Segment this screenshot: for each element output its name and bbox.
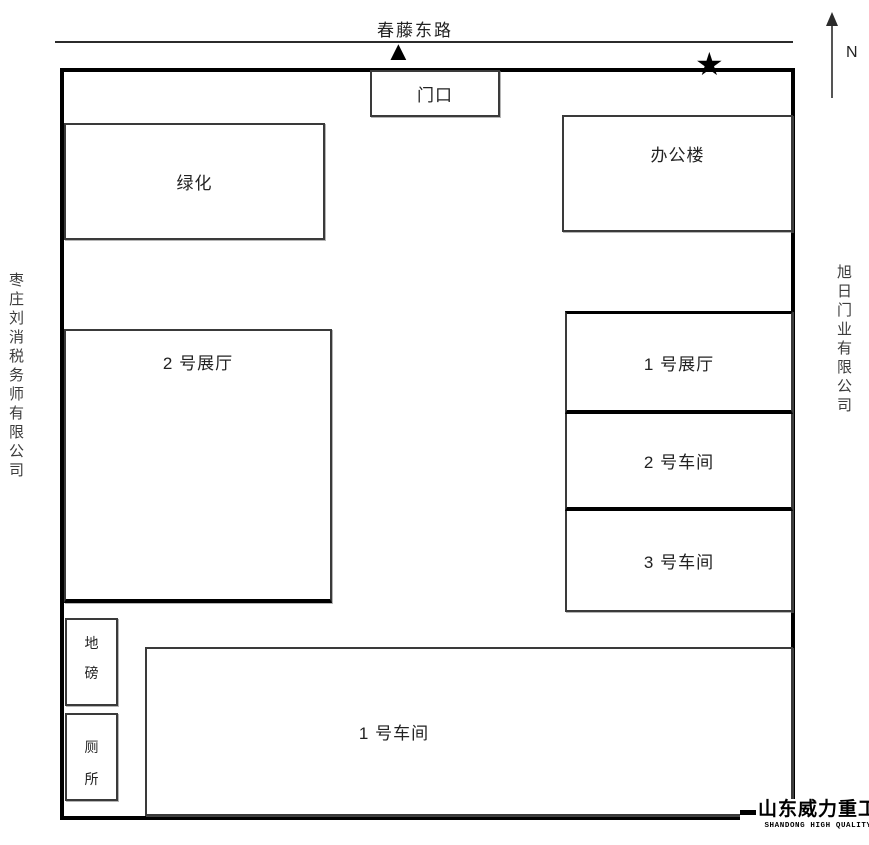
office-building-box: 办公楼 bbox=[562, 115, 793, 232]
workshop-3-label: 3 号车间 bbox=[644, 548, 714, 573]
neighbor-company-west: 枣庄刘消税务师有限公司 bbox=[8, 272, 23, 487]
site-plan-canvas: 春藤东路 ▲ N ★ 门口 绿化 办公楼 2 号展厅 1 号展厅 2 号车间 3… bbox=[0, 0, 869, 845]
toilet-label-char-2: 所 bbox=[85, 763, 99, 795]
workshop-2-box: 2 号车间 bbox=[565, 414, 793, 511]
brand-logo: 山东威力重工 SHANDONG HIGH QUALITY bbox=[740, 799, 869, 845]
entrance-triangle-marker: ▲ bbox=[385, 38, 412, 65]
gate-box: 门口 bbox=[370, 70, 500, 117]
workshop-2-label: 2 号车间 bbox=[644, 448, 714, 473]
weighbridge-box: 地 磅 bbox=[65, 618, 118, 706]
exhibition-hall-1-box: 1 号展厅 bbox=[565, 311, 793, 414]
gate-label: 门口 bbox=[417, 81, 453, 106]
greenery-label: 绿化 bbox=[177, 169, 213, 194]
road-name-label: 春藤东路 bbox=[340, 16, 490, 41]
north-arrow-icon bbox=[818, 12, 844, 104]
toilet-box: 厕 所 bbox=[65, 713, 118, 801]
workshop-3-box: 3 号车间 bbox=[565, 511, 793, 612]
toilet-label-char-1: 厕 bbox=[85, 731, 99, 763]
weighbridge-label-char-1: 地 bbox=[85, 628, 99, 658]
star-marker: ★ bbox=[695, 48, 724, 80]
greenery-box: 绿化 bbox=[64, 123, 325, 240]
exhibition-hall-1-label: 1 号展厅 bbox=[644, 350, 714, 375]
neighbor-company-east: 旭日门业有限公司 bbox=[836, 264, 851, 429]
logo-chinese-name: 山东威力重工 bbox=[758, 799, 869, 822]
workshop-1-label: 1 号车间 bbox=[359, 719, 429, 744]
road-line bbox=[55, 41, 793, 43]
logo-english-tagline: SHANDONG HIGH QUALITY bbox=[764, 822, 869, 830]
exhibition-hall-2-label: 2 号展厅 bbox=[163, 349, 233, 374]
exhibition-hall-2-box: 2 号展厅 bbox=[64, 329, 332, 603]
weighbridge-label-char-2: 磅 bbox=[85, 658, 99, 688]
logo-dash bbox=[740, 810, 756, 815]
office-building-label: 办公楼 bbox=[651, 141, 705, 166]
workshop-1-box: 1 号车间 bbox=[145, 647, 793, 816]
north-label: N bbox=[846, 44, 858, 62]
